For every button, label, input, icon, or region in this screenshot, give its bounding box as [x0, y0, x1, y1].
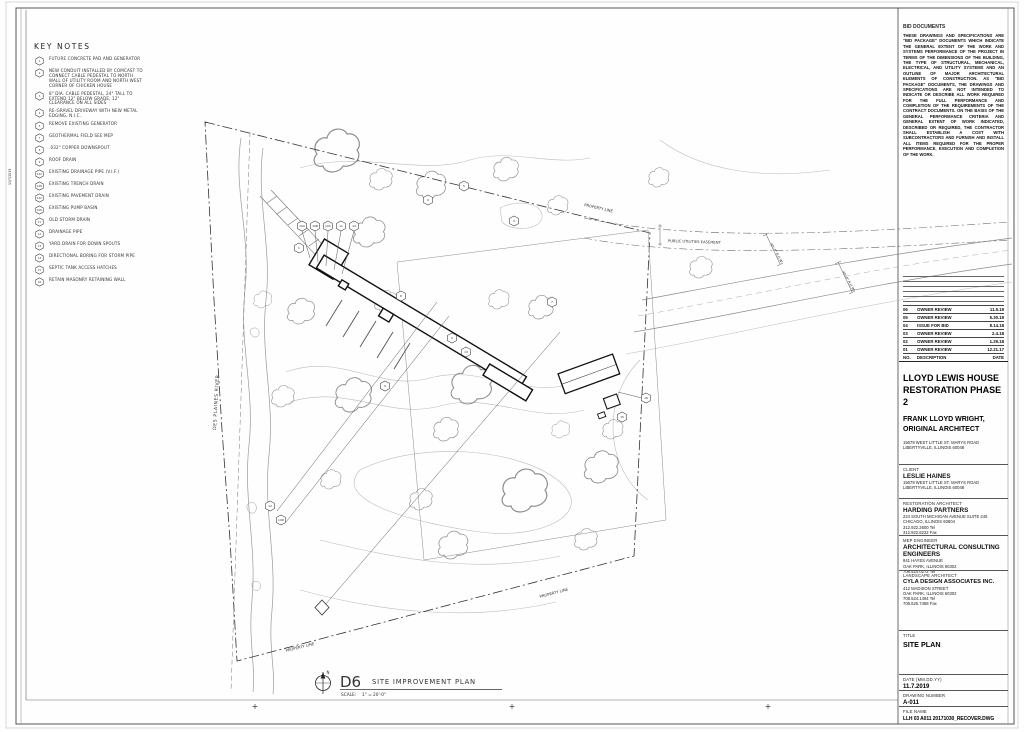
keynote-text: ROOF DRAIN	[49, 158, 145, 163]
revision-row: 02 OWNER REVIEW 1.29.18	[903, 337, 1004, 345]
geothermal-field-boundary	[397, 230, 666, 560]
svg-text:5: 5	[39, 124, 41, 128]
revision-description: OWNER REVIEW	[917, 339, 978, 344]
revision-number: 01	[903, 347, 917, 352]
revision-row: NO. DESCRIPTION DATE	[903, 353, 1004, 361]
tree-canopies	[254, 129, 713, 559]
svg-text:16: 16	[38, 280, 42, 284]
keynote-text: 8" DIA. CABLE PEDESTAL, 24" TALL TO EXTE…	[49, 92, 145, 107]
keynote-text: EXISTING DRAINAGE PIPE (V.I.F.)	[49, 170, 145, 175]
revision-row: 05 OWNER REVIEW 5.30.19	[903, 313, 1004, 321]
easement-label: PUBLIC UTILITIES EASEMENT	[668, 239, 722, 245]
river-label: DES PLAINES RIVER	[212, 374, 221, 430]
landscape-architect-section: LANDSCAPE ARCHITECT CYLA DESIGN ASSOCIAT…	[899, 570, 1008, 607]
svg-text:14: 14	[352, 224, 356, 228]
drawing-sheet: 11/7/2019	[0, 0, 1024, 732]
keynote-text: YARD DRAIN FOR DOWN SPOUTS	[49, 242, 145, 247]
keynote-text: EXISTING TRENCH DRAIN	[49, 182, 145, 187]
svg-text:13: 13	[38, 244, 42, 248]
revision-number: 04	[903, 323, 917, 328]
keynote-item: 11 OLD STORM DRAIN	[34, 218, 164, 227]
revision-row: 04 ISSUE FOR BID 8.14.18	[903, 321, 1004, 329]
svg-text:15: 15	[38, 268, 42, 272]
revision-description: OWNER REVIEW	[917, 347, 978, 352]
date-value: 11.7.2019	[903, 684, 1004, 690]
revision-table: 06 OWNER REVIEW 11.5.19 05 OWNER REVIEW …	[899, 305, 1008, 362]
mep-engineer-section: MEP ENGINEER ARCHITECTURAL CONSULTING EN…	[899, 535, 1008, 574]
revision-number: 03	[903, 331, 917, 336]
house-footprint	[305, 239, 544, 403]
bid-note-title: BID DOCUMENTS	[903, 24, 1004, 30]
keynote-hexagon-icon: 2	[34, 68, 45, 78]
svg-text:10B: 10B	[37, 184, 42, 188]
keynote-item: 15 SEPTIC TANK ACCESS HATCHES	[34, 266, 164, 275]
property-line-label-bottom: PROPERTY LINE	[539, 586, 569, 599]
barn-footprint	[558, 354, 620, 394]
keynote-item: 16 RETAIN MASONRY RETAINING WALL	[34, 278, 164, 287]
client-section: CLIENT LESLIE HAINES 15679 WEST LITTLE S…	[899, 464, 1008, 491]
revision-number: 06	[903, 307, 917, 312]
svg-text:9: 9	[39, 160, 41, 164]
client-label: CLIENT	[903, 467, 1004, 472]
keynote-hexagon-icon: 11	[34, 217, 45, 227]
sheet-title-value: SITE PLAN	[903, 640, 1004, 649]
client-address-2: LIBERTYVILLE, ILLINOIS 60048	[903, 485, 1004, 490]
revision-number: 05	[903, 315, 917, 320]
keynote-item: 13 YARD DRAIN FOR DOWN SPOUTS	[34, 242, 164, 251]
revision-row: 01 OWNER REVIEW 12.21.17	[903, 345, 1004, 353]
file-name-value: LLH 03 A011 20171030_RECOVER.DWG	[903, 716, 1004, 722]
north-arrow-icon: N	[316, 670, 331, 694]
revision-description: DESCRIPTION	[917, 355, 978, 360]
revision-description: OWNER REVIEW	[917, 307, 978, 312]
svg-text:1: 1	[39, 59, 41, 63]
revision-number: NO.	[903, 355, 917, 360]
restoration-architect-section: RESTORATION ARCHITECT HARDING PARTNERS 2…	[899, 498, 1008, 535]
property-line-label-bottomleft: PROPERTY LINE	[285, 641, 315, 653]
revision-row: 06 OWNER REVIEW 11.5.19	[903, 305, 1004, 313]
drawing-title-block: D6 SITE IMPROVEMENT PLAN SCALE: 1" = 20'…	[340, 673, 502, 698]
keynote-hexagon-icon: 9	[34, 157, 45, 167]
keynote-item: 14 DIRECTIONAL BORING FOR STORM PIPE	[34, 254, 164, 263]
keynote-hexagon-icon: 3	[34, 91, 45, 101]
revision-date: 8.14.18	[978, 323, 1004, 328]
revision-date: DATE	[978, 355, 1004, 360]
project-architect-line1: FRANK LLOYD WRIGHT,	[903, 415, 1004, 424]
keynote-text: OLD STORM DRAIN	[49, 218, 145, 223]
keynote-hexagon-icon: 7	[34, 133, 45, 143]
svg-text:3: 3	[39, 94, 41, 98]
keynotes-panel: KEY NOTES 1 FUTURE CONCRETE PAD AND GENE…	[34, 42, 164, 290]
revision-description: ISSUE FOR BID	[917, 323, 978, 328]
svg-text:1: 1	[298, 246, 300, 250]
row-dimension-2: 40'-0" R.O.W.	[841, 271, 856, 292]
file-name-section: FILE NAME LLH 03 A011 20171030_RECOVER.D…	[899, 706, 1008, 722]
keynote-hexagon-icon: 4	[34, 108, 45, 118]
keynote-item: 10D EXISTING PUMP BASIN	[34, 206, 164, 215]
keynote-item: 8 .032" COPPER DOWNSPOUT	[34, 146, 164, 155]
keynote-text: DIRECTIONAL BORING FOR STORM PIPE	[49, 254, 145, 259]
property-line-label-top: PROPERTY LINE	[584, 202, 614, 214]
keynote-hexagon-icon: 1	[34, 56, 45, 66]
keynote-item: 10C EXISTING PAVEMENT DRAIN	[34, 194, 164, 203]
drawing-number-label: DRAWING NUMBER	[903, 693, 1004, 698]
keynote-hexagon-icon: 10B	[34, 181, 45, 191]
drawing-title: SITE IMPROVEMENT PLAN	[372, 678, 476, 686]
keynote-hexagon-icon: 10D	[34, 205, 45, 215]
svg-text:10C: 10C	[37, 196, 42, 200]
keynote-item: 4 RE-GRAVEL DRIVEWAY WITH NEW METAL EDGI…	[34, 109, 164, 119]
revision-description: OWNER REVIEW	[917, 315, 978, 320]
keynote-text: GEOTHERMAL FIELD SEE MEP	[49, 134, 145, 139]
keynote-item: 1 FUTURE CONCRETE PAD AND GENERATOR	[34, 57, 164, 66]
svg-text:10A: 10A	[37, 172, 42, 176]
svg-text:8: 8	[400, 294, 402, 298]
keynote-hexagon-icon: 14	[34, 253, 45, 263]
revision-description: OWNER REVIEW	[917, 331, 978, 336]
revision-number: 02	[903, 339, 917, 344]
drawing-number-value: A-011	[903, 700, 1004, 706]
svg-text:11: 11	[38, 220, 42, 224]
shed-footprint	[597, 394, 620, 419]
keynotes-title: KEY NOTES	[34, 42, 164, 51]
svg-text:4: 4	[39, 111, 41, 115]
revision-date: 1.29.18	[978, 339, 1004, 344]
keynote-text: RE-GRAVEL DRIVEWAY WITH NEW METAL EDGING…	[49, 109, 145, 119]
landscape-architect-fax: 708.525.7488 Fax	[903, 601, 1004, 606]
keynote-hexagon-icon: 13	[34, 241, 45, 251]
keynote-text: DRAINAGE PIPE	[49, 230, 145, 235]
keynote-text: NEW CONDUIT INSTALLED BY COMCAST TO CONN…	[49, 69, 145, 89]
bid-documents-note: BID DOCUMENTS THESE DRAWINGS AND SPECIFI…	[899, 24, 1008, 157]
svg-text:13: 13	[464, 350, 468, 354]
row-dimension-1: 40'-0" R.O.W.	[769, 243, 784, 264]
keynote-item: 10B EXISTING TRENCH DRAIN	[34, 182, 164, 191]
keynote-text: .032" COPPER DOWNSPOUT	[49, 146, 145, 151]
keynote-text: EXISTING PUMP BASIN	[49, 206, 145, 211]
keynote-hexagon-icon: 5	[34, 121, 45, 131]
title-block: BID DOCUMENTS THESE DRAWINGS AND SPECIFI…	[899, 8, 1008, 724]
keynote-item: 5 REMOVE EXISTING GENERATOR	[34, 122, 164, 131]
svg-text:12: 12	[268, 504, 272, 508]
svg-text:10D: 10D	[278, 518, 285, 522]
survey-monument	[315, 600, 329, 615]
keynote-hexagon-icon: 15	[34, 265, 45, 275]
keynote-item: 3 8" DIA. CABLE PEDESTAL, 24" TALL TO EX…	[34, 92, 164, 107]
keynote-hexagon-icon: 8	[34, 145, 45, 155]
landscape-architect-label: LANDSCAPE ARCHITECT	[903, 573, 1004, 578]
svg-text:10D: 10D	[37, 208, 42, 212]
file-name-label: FILE NAME	[903, 709, 1004, 714]
revision-date: 12.21.17	[978, 347, 1004, 352]
keynote-hexagon-icon: 10C	[34, 193, 45, 203]
project-identification: LLOYD LEWIS HOUSE RESTORATION PHASE 2 FR…	[899, 372, 1008, 451]
mep-engineer-name-2: ENGINEERS	[903, 551, 1004, 558]
keynote-hexagon-icon: 16	[34, 277, 45, 287]
scale-label: SCALE:	[341, 692, 356, 698]
keynote-item: 12 DRAINAGE PIPE	[34, 230, 164, 239]
date-section: DATE (MM.DD.YY) 11.7.2019	[899, 674, 1008, 690]
project-address-line2: LIBERTYVILLE, ILLINOIS 60048	[903, 445, 1004, 450]
drawing-number-section: DRAWING NUMBER A-011	[899, 690, 1008, 706]
keynote-hexagon-icon: 10A	[34, 169, 45, 179]
blank-revision-rules	[899, 276, 1008, 306]
mep-engineer-name-1: ARCHITECTURAL CONSULTING	[903, 544, 1004, 551]
contour-lines	[286, 140, 830, 613]
revision-date: 5.30.19	[978, 315, 1004, 320]
keynote-hexagon-icon: 12	[34, 229, 45, 239]
sheet-title-label: TITLE	[903, 633, 1004, 638]
svg-text:N: N	[327, 670, 330, 675]
bid-note-body: THESE DRAWINGS AND SPECIFICATIONS ARE "B…	[903, 33, 1004, 157]
svg-text:10A: 10A	[299, 224, 306, 228]
svg-text:16: 16	[644, 396, 648, 400]
svg-text:12: 12	[38, 232, 42, 236]
restoration-architect-label: RESTORATION ARCHITECT	[903, 501, 1004, 506]
project-title-line2: RESTORATION PHASE 2	[903, 384, 1004, 408]
revision-date: 2.4.18	[978, 331, 1004, 336]
svg-text:8: 8	[39, 148, 41, 152]
keynote-text: SEPTIC TANK ACCESS HATCHES	[49, 266, 145, 271]
keynote-item: 2 NEW CONDUIT INSTALLED BY COMCAST TO CO…	[34, 69, 164, 89]
keynote-text: RETAIN MASONRY RETAINING WALL	[49, 278, 145, 283]
svg-text:5: 5	[463, 184, 465, 188]
drawing-id: D6	[340, 673, 361, 691]
svg-text:4: 4	[427, 198, 429, 202]
date-label: DATE (MM.DD.YY)	[903, 677, 1004, 682]
revision-row: 03 OWNER REVIEW 2.4.18	[903, 329, 1004, 337]
project-architect-line2: ORIGINAL ARCHITECT	[903, 425, 1004, 434]
svg-text:7: 7	[39, 136, 41, 140]
border-tick-marks	[253, 704, 771, 709]
project-title-line1: LLOYD LEWIS HOUSE	[903, 372, 1004, 384]
keynote-text: FUTURE CONCRETE PAD AND GENERATOR	[49, 57, 145, 62]
svg-text:2: 2	[451, 336, 453, 340]
svg-text:10B: 10B	[312, 224, 318, 228]
restoration-architect-name: HARDING PARTNERS	[903, 507, 1004, 514]
svg-text:10C: 10C	[325, 224, 331, 228]
keynote-item: 7 GEOTHERMAL FIELD SEE MEP	[34, 134, 164, 143]
plot-stamp: 11/7/2019	[8, 169, 12, 185]
client-name: LESLIE HAINES	[903, 473, 1004, 480]
keynote-text: REMOVE EXISTING GENERATOR	[49, 122, 145, 127]
svg-text:11: 11	[339, 224, 343, 228]
svg-text:14: 14	[38, 256, 42, 260]
keynote-text: EXISTING PAVEMENT DRAIN	[49, 194, 145, 199]
scale-value: 1" = 20'-0"	[362, 692, 386, 698]
svg-text:15: 15	[620, 415, 624, 419]
mep-engineer-label: MEP ENGINEER	[903, 538, 1004, 543]
landscape-architect-name: CYLA DESIGN ASSOCIATES INC.	[903, 579, 1004, 586]
revision-date: 11.5.19	[978, 307, 1004, 312]
keynote-item: 10A EXISTING DRAINAGE PIPE (V.I.F.)	[34, 170, 164, 179]
svg-text:3: 3	[513, 219, 515, 223]
svg-text:9: 9	[384, 384, 386, 388]
sheet-title-section: TITLE SITE PLAN	[899, 630, 1008, 649]
keynote-item: 9 ROOF DRAIN	[34, 158, 164, 167]
svg-text:2: 2	[39, 71, 41, 75]
svg-text:7: 7	[551, 300, 553, 304]
